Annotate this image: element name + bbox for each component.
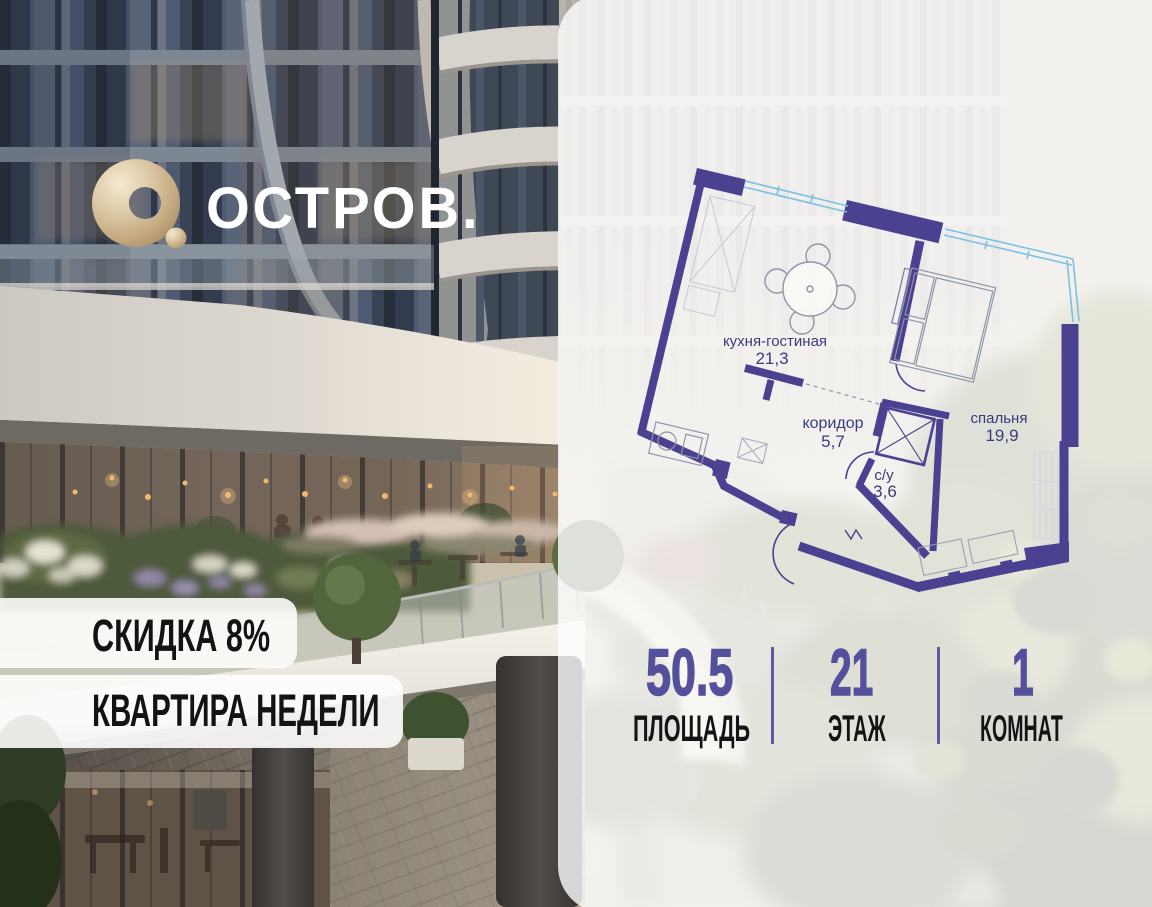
svg-text:3,6: 3,6 [873, 482, 897, 501]
svg-text:кухня-гостиная: кухня-гостиная [723, 333, 827, 350]
svg-text:19,9: 19,9 [985, 426, 1018, 445]
svg-text:коридор: коридор [802, 415, 863, 432]
svg-text:5,7: 5,7 [821, 432, 845, 451]
svg-text:21,3: 21,3 [755, 349, 788, 368]
svg-text:спальня: спальня [971, 410, 1028, 427]
